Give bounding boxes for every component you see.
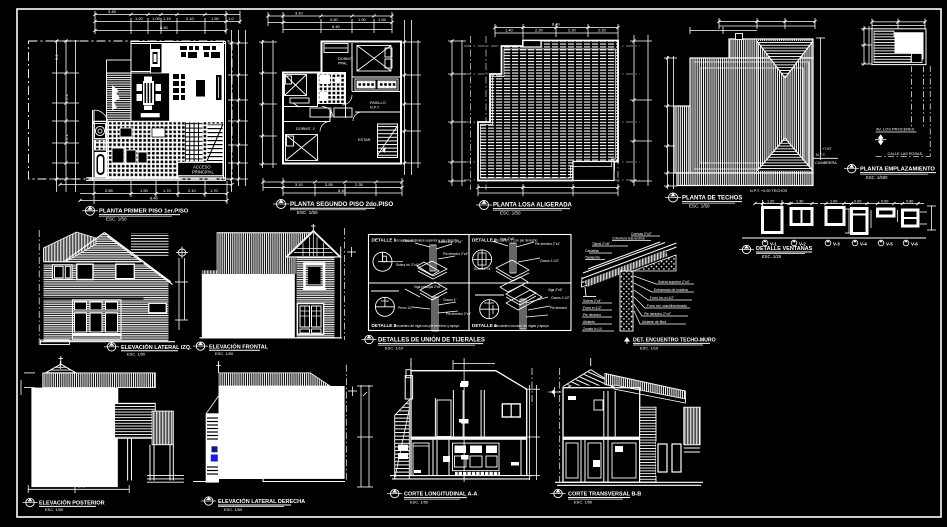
svg-text:1.20: 1.20: [767, 200, 774, 204]
svg-text:1.50: 1.50: [211, 16, 220, 21]
svg-text:2.10: 2.10: [186, 16, 195, 21]
svg-text:V-6: V-6: [911, 242, 918, 247]
svg-text:PPAL: PPAL: [338, 62, 347, 66]
svg-text:PRINCIPAL: PRINCIPAL: [192, 170, 214, 175]
svg-text:DETALLES DE UNIÓN DE TIJERALES: DETALLES DE UNIÓN DE TIJERALES: [378, 336, 485, 344]
svg-text:Viga 2"x6": Viga 2"x6": [500, 237, 515, 241]
svg-text:ESC. 1/50: ESC. 1/50: [106, 217, 127, 222]
svg-text:2.60: 2.60: [330, 17, 339, 22]
svg-text:Cobertura teja andina: Cobertura teja andina: [612, 237, 645, 241]
svg-text:0.80: 0.80: [906, 200, 913, 204]
svg-text:3.10: 3.10: [295, 11, 304, 16]
svg-text:Solera 2"x4": Solera 2"x4": [583, 299, 602, 303]
svg-text:ELEVACIÓN LATERAL IZQ.: ELEVACIÓN LATERAL IZQ.: [121, 343, 192, 351]
svg-text:Tapajunta: Tapajunta: [585, 256, 600, 260]
svg-text:1.70: 1.70: [210, 188, 219, 193]
svg-text:8.40: 8.40: [332, 24, 341, 29]
svg-text:0.90: 0.90: [854, 200, 861, 204]
svg-text:Pie derecho 2"x4": Pie derecho 2"x4": [446, 312, 471, 316]
svg-text:CORTE TRANSVERSAL B-B: CORTE TRANSVERSAL B-B: [568, 492, 641, 498]
svg-text:Clavos 4": Clavos 4": [443, 298, 457, 302]
svg-text:AV. LOS PROCERES: AV. LOS PROCERES: [876, 127, 915, 132]
svg-text:8.40: 8.40: [160, 25, 169, 30]
svg-text:Forro e=1/2": Forro e=1/2": [583, 306, 603, 310]
svg-text:Zocalo h=10: Zocalo h=10: [583, 327, 602, 331]
svg-text:Clavos 3 1/2": Clavos 3 1/2": [540, 259, 559, 263]
svg-text:Entramado de madera: Entramado de madera: [654, 288, 688, 292]
svg-text:8.40: 8.40: [78, 485, 85, 489]
svg-text:PLANTA PRIMER PISO 1er.PISO: PLANTA PRIMER PISO 1er.PISO: [99, 209, 189, 215]
svg-text:V-5: V-5: [886, 242, 893, 247]
svg-text:Solera superior 2"x4": Solera superior 2"x4": [658, 280, 691, 284]
svg-text:Perno 1/2": Perno 1/2": [398, 306, 413, 310]
svg-text:ESC. 1/25: ESC. 1/25: [762, 254, 782, 259]
svg-text:Pie derecho: Pie derecho: [583, 313, 601, 317]
svg-text:CALLE LAS ROSAS: CALLE LAS ROSAS: [888, 152, 923, 156]
svg-text:+7.67: +7.67: [822, 147, 832, 151]
svg-text:Clavos 3 1/2": Clavos 3 1/2": [551, 296, 570, 300]
svg-text:2.20: 2.20: [568, 28, 577, 33]
svg-text:ESC. 1/10: ESC. 1/10: [385, 346, 404, 351]
svg-text:Solera sup. 2"x4": Solera sup. 2"x4": [438, 240, 462, 244]
svg-text:1.20: 1.20: [135, 16, 144, 21]
svg-text:ESC. 1/50: ESC. 1/50: [689, 204, 710, 209]
svg-text:N.P.T.: N.P.T.: [370, 106, 380, 110]
svg-text:1.70: 1.70: [163, 188, 172, 193]
svg-text:1.00: 1.00: [830, 200, 837, 204]
svg-text:DETALLE VENTANAS: DETALLE VENTANAS: [756, 246, 813, 252]
svg-text:V-3: V-3: [833, 242, 840, 247]
svg-text:CUMBRERA: CUMBRERA: [815, 161, 837, 165]
svg-text:Aislante de fibra: Aislante de fibra: [642, 320, 666, 324]
svg-text:Pie derecho 2"x4": Pie derecho 2"x4": [644, 312, 672, 316]
svg-text:2.1: 2.1: [64, 134, 69, 140]
svg-text:DORMIT. 2: DORMIT. 2: [296, 127, 315, 131]
svg-text:1.40: 1.40: [505, 28, 514, 33]
svg-text:Canaleta: Canaleta: [585, 249, 599, 253]
svg-text:2.20: 2.20: [598, 28, 607, 33]
svg-text:Tijeral 2"x6": Tijeral 2"x6": [592, 242, 611, 246]
svg-text:3.45: 3.45: [108, 9, 117, 14]
svg-text:Solera 2"x4": Solera 2"x4": [474, 267, 492, 271]
svg-text:1.55: 1.55: [378, 17, 387, 22]
svg-text:DETALLE 1: DETALLE 1: [372, 238, 397, 243]
svg-text:N.P.T. +0.00 TECHOS: N.P.T. +0.00 TECHOS: [750, 189, 788, 193]
svg-text:DETALLE 3: DETALLE 3: [372, 323, 397, 328]
svg-text:V-4: V-4: [860, 242, 867, 247]
svg-text:2.4: 2.4: [64, 94, 69, 100]
svg-text:PLANTA SEGUNDO PISO 2do.PISO: PLANTA SEGUNDO PISO 2do.PISO: [290, 201, 393, 208]
svg-text:2.85: 2.85: [105, 188, 114, 193]
svg-text:8.40: 8.40: [150, 196, 159, 201]
svg-text:CORTE LONGITUDINAL A-A: CORTE LONGITUDINAL A-A: [404, 492, 477, 498]
svg-text:Solera inf. 2"x4": Solera inf. 2"x4": [396, 263, 419, 267]
svg-text:ESC. 1/50: ESC. 1/50: [224, 507, 243, 512]
svg-text:8.40: 8.40: [552, 22, 561, 27]
svg-text:DET. ENCUENTRO TECHO-MURO: DET. ENCUENTRO TECHO-MURO: [633, 338, 716, 344]
svg-text:ELEVACIÓN POSTERIOR: ELEVACIÓN POSTERIOR: [39, 499, 105, 507]
svg-text:3.10: 3.10: [295, 182, 304, 187]
svg-text:Viga 2"x6": Viga 2"x6": [548, 288, 563, 292]
svg-text:Viga principal 2"x6": Viga principal 2"x6": [414, 285, 441, 289]
svg-text:Pie derecho: Pie derecho: [550, 306, 567, 310]
svg-text:1.90: 1.90: [358, 17, 367, 22]
svg-text:0.90: 0.90: [881, 200, 888, 204]
svg-text:Encuentro de viga con pie dere: Encuentro de viga con pie derecho y apoy…: [394, 324, 459, 328]
svg-text:Pie derecho 2"x4": Pie derecho 2"x4": [443, 252, 468, 256]
svg-text:DORMIT.: DORMIT.: [338, 57, 354, 61]
svg-text:1.30: 1.30: [796, 200, 803, 204]
svg-text:2.10: 2.10: [188, 188, 197, 193]
svg-text:PASILLO: PASILLO: [370, 101, 386, 105]
svg-text:2.55: 2.55: [325, 182, 334, 187]
svg-text:1.15: 1.15: [163, 16, 172, 21]
svg-text:ESC. 1/50: ESC. 1/50: [410, 500, 429, 505]
svg-text:2.35: 2.35: [355, 182, 364, 187]
svg-text:Pie derecho 2"x4": Pie derecho 2"x4": [535, 242, 560, 246]
svg-text:N.T.T.: N.T.T.: [816, 153, 826, 157]
svg-text:PLANTA LOSA ALIGERADA: PLANTA LOSA ALIGERADA: [493, 203, 573, 209]
svg-text:ESTAR: ESTAR: [358, 138, 371, 142]
svg-text:1.05: 1.05: [152, 16, 161, 21]
svg-text:1.0: 1.0: [228, 16, 234, 21]
svg-text:ELEVACIÓN FRONTAL: ELEVACIÓN FRONTAL: [209, 343, 269, 351]
svg-text:ESC. 1/50: ESC. 1/50: [45, 507, 64, 512]
svg-text:PLANTA EMPLAZAMIENTO: PLANTA EMPLAZAMIENTO: [860, 167, 935, 173]
svg-text:1.90: 1.90: [140, 188, 149, 193]
svg-text:Clavos 3": Clavos 3": [403, 239, 417, 243]
svg-text:ESC. 1/500: ESC. 1/500: [866, 175, 888, 180]
svg-text:ESC. 1/50: ESC. 1/50: [500, 211, 521, 216]
svg-text:8.40: 8.40: [338, 188, 347, 193]
svg-text:Correas 2"x2": Correas 2"x2": [631, 232, 653, 236]
svg-text:ESC. 1/10: ESC. 1/10: [640, 346, 659, 351]
svg-text:ESC. 1/50: ESC. 1/50: [127, 352, 146, 357]
svg-text:ELEVACIÓN LATERAL DERECHA: ELEVACIÓN LATERAL DERECHA: [218, 497, 305, 505]
svg-text:Forro ext. machihembrado: Forro ext. machihembrado: [647, 304, 687, 308]
svg-text:Aislante: Aislante: [583, 320, 595, 324]
svg-text:3.2: 3.2: [54, 54, 59, 60]
svg-text:PLANTA DE TECHOS: PLANTA DE TECHOS: [682, 196, 742, 202]
svg-text:ESC. 1/50: ESC. 1/50: [574, 500, 593, 505]
svg-text:ESC. 1/50: ESC. 1/50: [297, 210, 318, 215]
svg-text:ESC. 1/50: ESC. 1/50: [215, 351, 234, 356]
svg-text:2.20: 2.20: [535, 28, 544, 33]
svg-text:Encuentro cruzado de vigas y a: Encuentro cruzado de vigas y apoyo: [494, 324, 549, 328]
svg-text:Forro int. e=1/2": Forro int. e=1/2": [650, 296, 675, 300]
